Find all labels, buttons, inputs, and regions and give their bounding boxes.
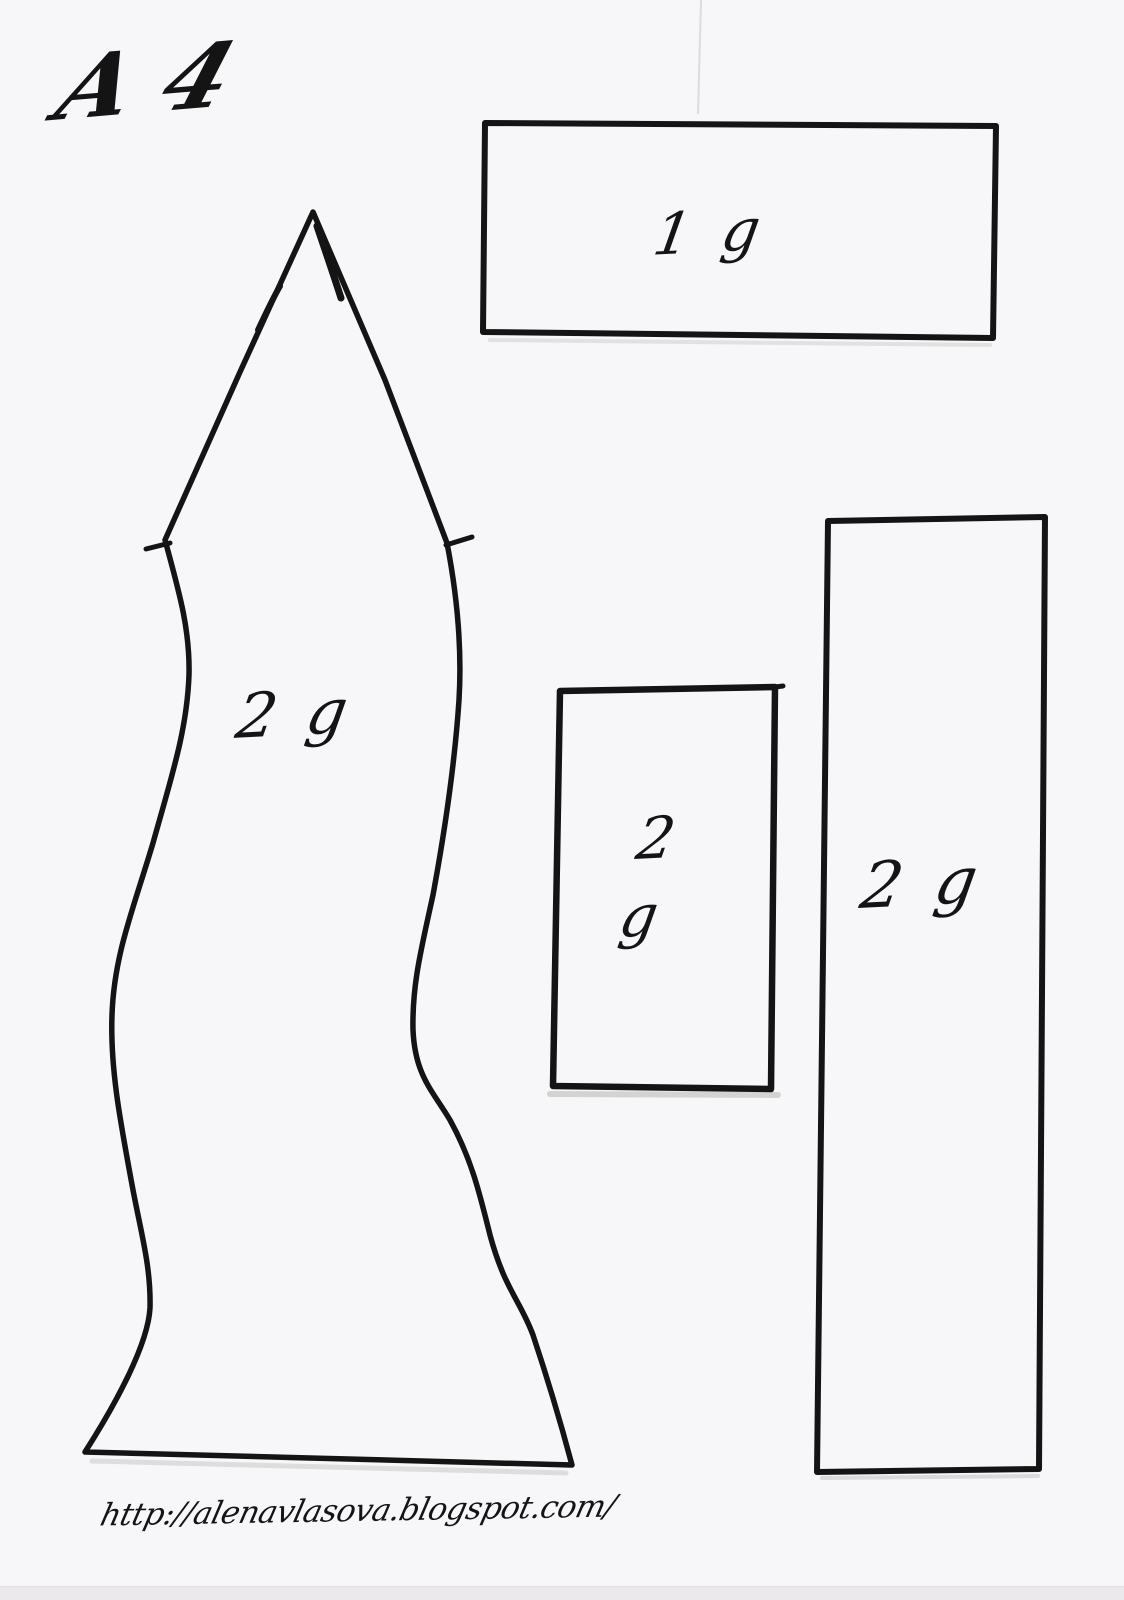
fold-line-artifact <box>698 0 701 114</box>
piece-tall-strip-outline <box>817 517 1045 1472</box>
piece-body-outline <box>85 212 572 1465</box>
watermark-url: http://alenavlasova.blogspot.com/ <box>97 1492 618 1532</box>
scan-shadow-top-strip <box>490 340 990 345</box>
scanned-pattern-sheet: A 4 1 g 2 g 2 g 2 g http://alenavlasova.… <box>0 0 1124 1600</box>
pen-overlap-stroke-left <box>258 286 280 330</box>
piece-tall-strip-label: 2 g <box>856 849 981 919</box>
scan-shadow-tall-strip <box>822 1476 1038 1478</box>
piece-body-label: 2 g <box>232 680 352 748</box>
sheet-size-label: A 4 <box>47 30 244 134</box>
scan-shadow-small-rect <box>550 1094 778 1095</box>
pen-overshoot-small-rect <box>775 686 783 687</box>
piece-top-strip-label: 1 g <box>650 200 765 263</box>
right-notch-mark <box>446 537 472 545</box>
piece-small-rect-outline <box>553 687 775 1089</box>
pattern-drawing-canvas <box>0 0 1124 1600</box>
scanner-edge-strip <box>0 1586 1124 1600</box>
